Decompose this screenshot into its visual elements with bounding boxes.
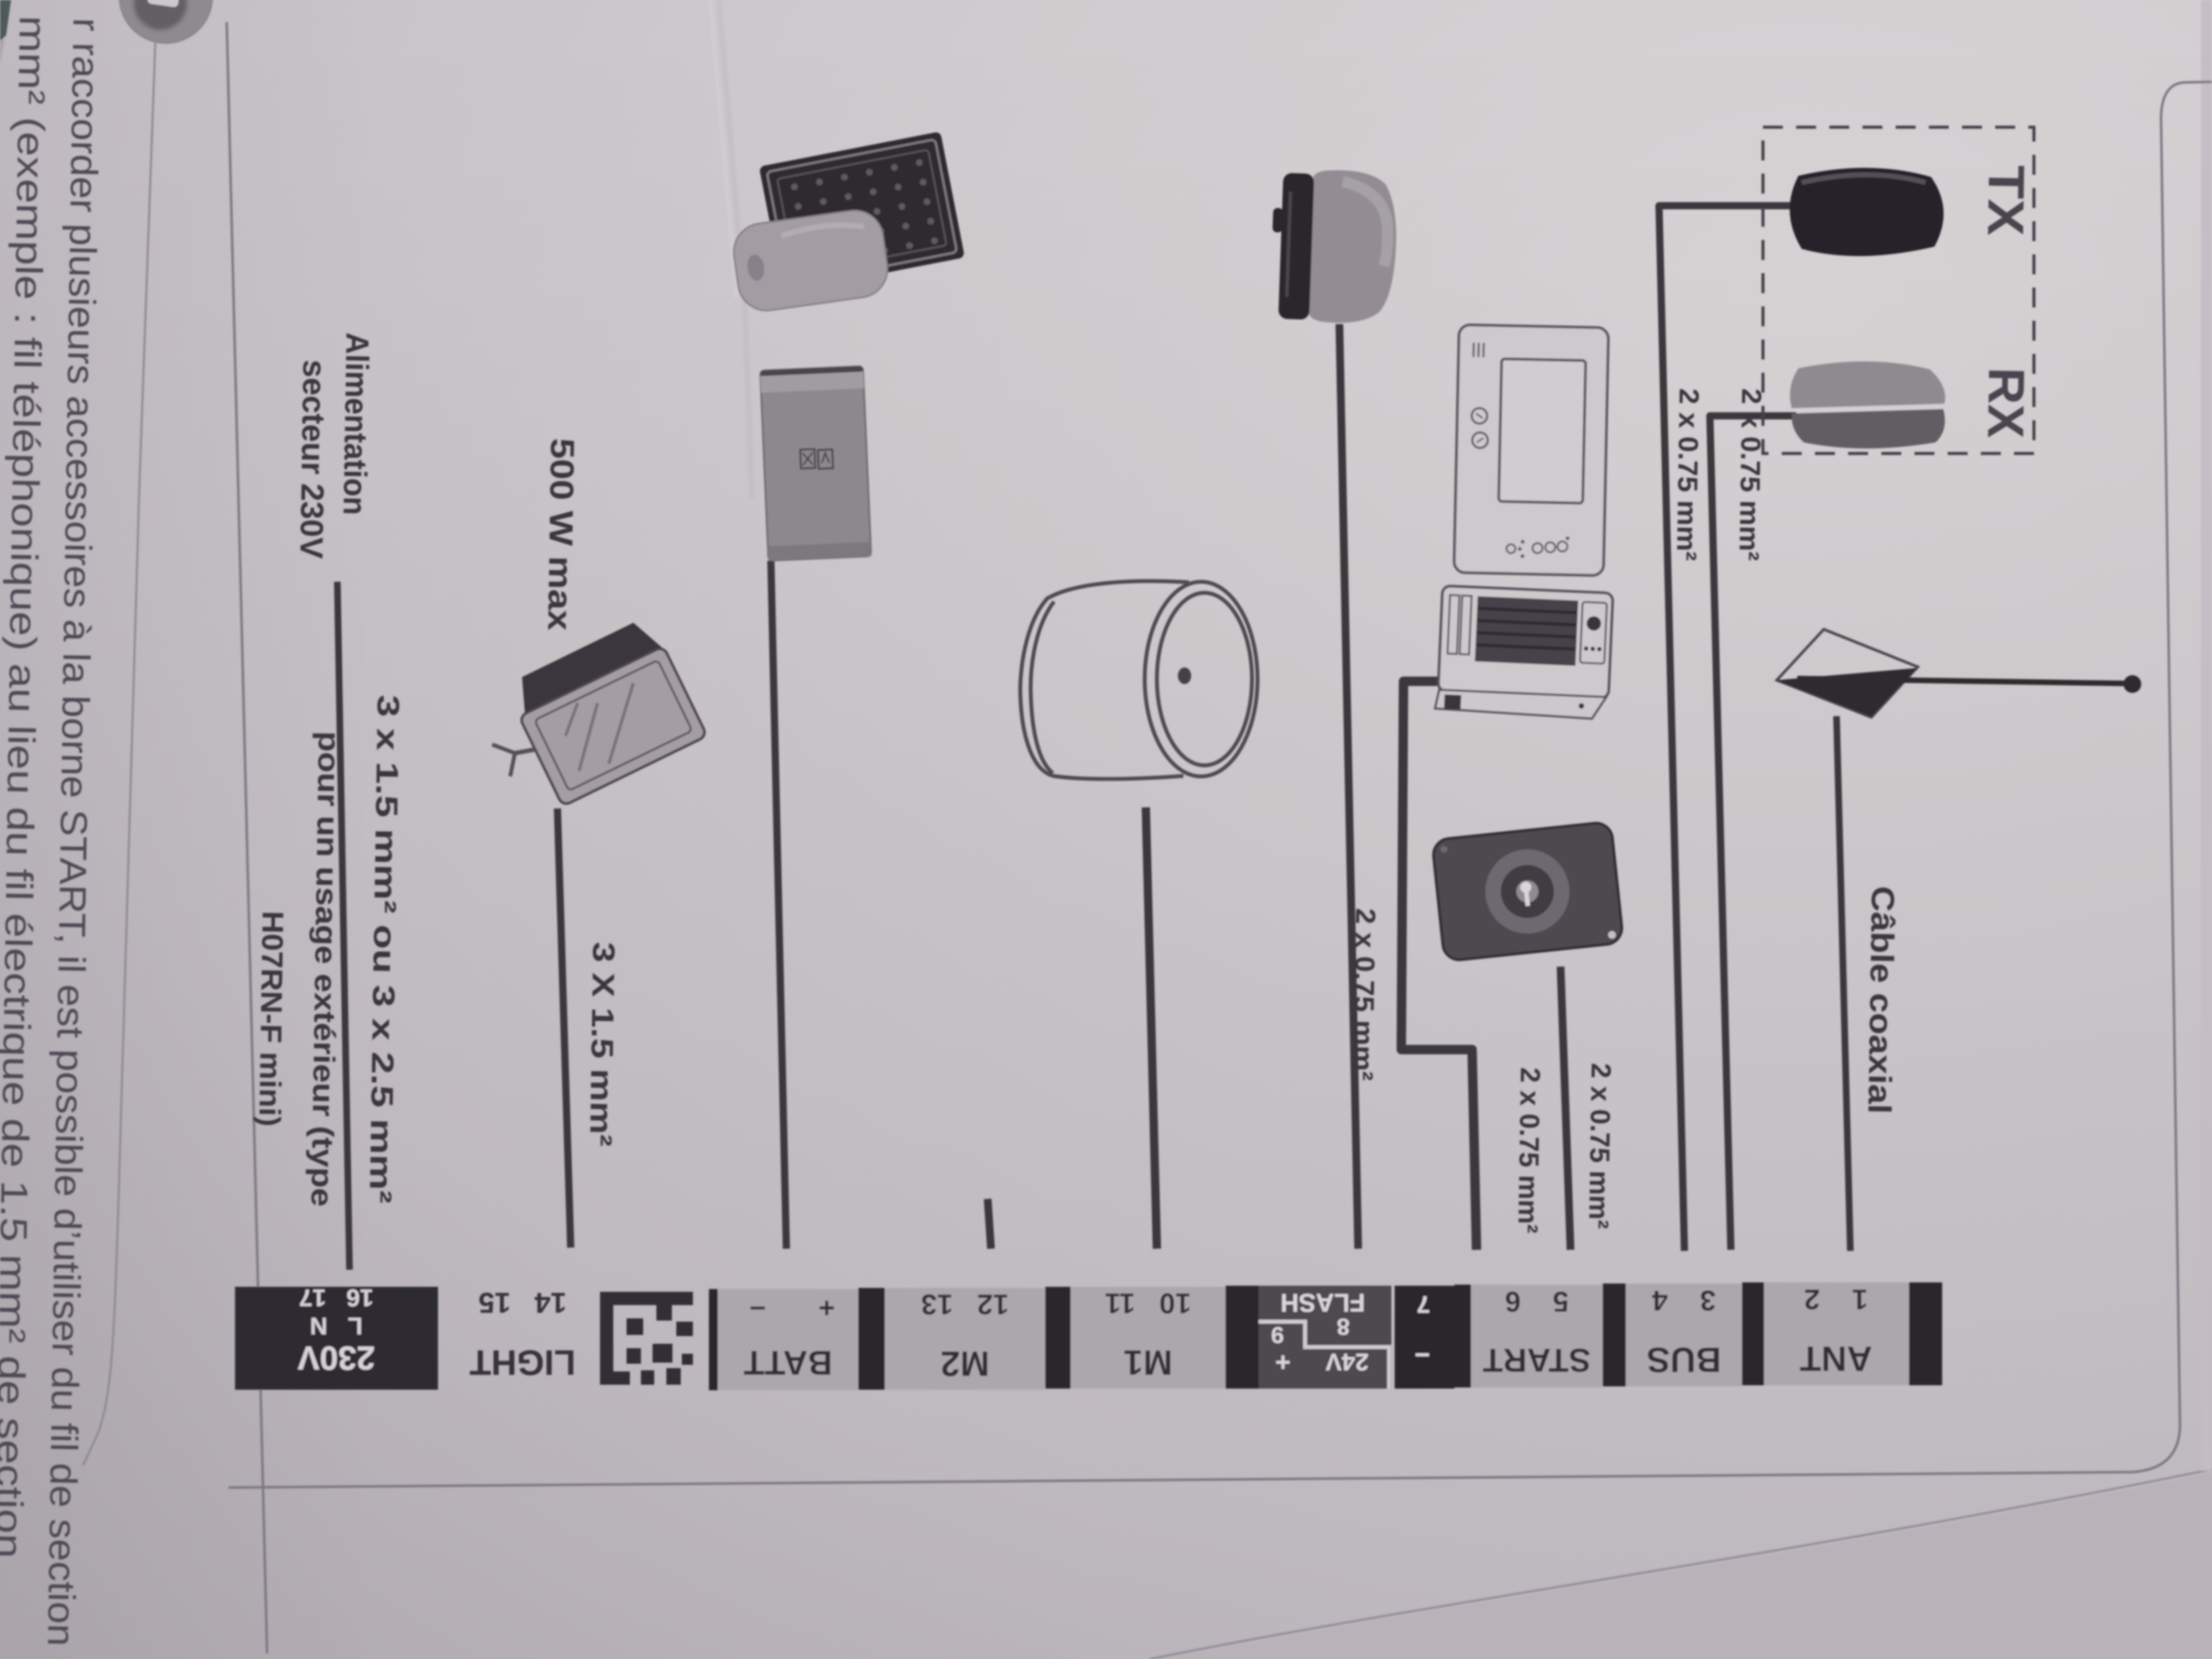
svg-text:RX: RX xyxy=(1977,367,2034,439)
svg-text:24V: 24V xyxy=(1325,1348,1369,1375)
svg-text:LIGHT: LIGHT xyxy=(469,1343,576,1383)
svg-text:9: 9 xyxy=(1271,1322,1284,1348)
svg-text:+: + xyxy=(1275,1347,1291,1376)
svg-text:START: START xyxy=(1483,1342,1591,1379)
svg-text:FLASH: FLASH xyxy=(1280,1288,1365,1317)
svg-text:2 x 0.75 mm²: 2 x 0.75 mm² xyxy=(1348,908,1381,1081)
svg-text:3 4: 3 4 xyxy=(1652,1284,1716,1316)
svg-text:−: − xyxy=(749,1292,766,1324)
svg-text:230V: 230V xyxy=(298,1339,375,1376)
svg-text:14 15: 14 15 xyxy=(478,1286,566,1318)
svg-text:M1: M1 xyxy=(1124,1343,1173,1383)
svg-text:ANT: ANT xyxy=(1799,1339,1872,1379)
svg-text:M2: M2 xyxy=(941,1344,990,1384)
svg-text:L N: L N xyxy=(310,1312,362,1339)
svg-text:secteur 230V: secteur 230V xyxy=(293,359,332,559)
svg-text:+: + xyxy=(818,1292,835,1324)
svg-text:12 13: 12 13 xyxy=(921,1288,1009,1320)
svg-text:2 x 0.75 mm²: 2 x 0.75 mm² xyxy=(1671,388,1705,561)
svg-text:10 11: 10 11 xyxy=(1105,1287,1191,1319)
svg-text:BUS: BUS xyxy=(1646,1340,1721,1380)
svg-text:Câble coaxial: Câble coaxial xyxy=(1861,886,1901,1114)
svg-text:8: 8 xyxy=(1337,1314,1349,1340)
svg-text:TX: TX xyxy=(1977,165,2034,237)
svg-text:16 17: 16 17 xyxy=(299,1284,374,1311)
svg-text:BATT: BATT xyxy=(744,1343,833,1381)
svg-text:H07RN-F mini): H07RN-F mini) xyxy=(253,911,289,1127)
svg-text:−: − xyxy=(1415,1340,1430,1369)
svg-text:2 x 0.75 mm²: 2 x 0.75 mm² xyxy=(1583,1063,1617,1229)
svg-text:Alimentation: Alimentation xyxy=(336,332,375,515)
svg-text:5 6: 5 6 xyxy=(1505,1285,1569,1317)
svg-text:7: 7 xyxy=(1417,1291,1430,1318)
svg-text:1 2: 1 2 xyxy=(1804,1283,1868,1315)
svg-text:3 X 1.5 mm²: 3 X 1.5 mm² xyxy=(583,942,622,1147)
svg-text:2 x 0.75 mm²: 2 x 0.75 mm² xyxy=(1512,1067,1546,1234)
svg-text:500 W max: 500 W max xyxy=(541,438,581,631)
